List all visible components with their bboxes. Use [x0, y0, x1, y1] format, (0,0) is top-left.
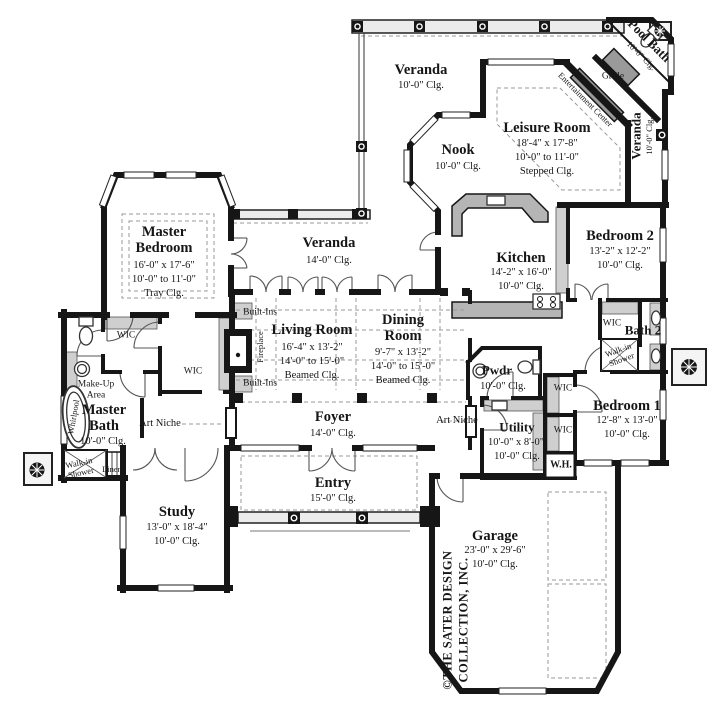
label-pwdr: Pwdr — [482, 364, 512, 379]
label-veranda-mid-clg: 14'-0" Clg. — [306, 255, 352, 267]
entertainment-center-unit — [570, 49, 639, 122]
label-utility: Utility — [499, 421, 534, 436]
label-makeup-area: Make-Up Area — [68, 379, 124, 400]
label-linen: Linen — [102, 465, 122, 475]
label-veranda-mid: Veranda — [303, 235, 356, 251]
label-bedroom2-dims: 13'-2" x 12'-2" — [589, 246, 650, 258]
label-pwdr-clg: 10'-0" Clg. — [480, 381, 526, 393]
label-bedroom1: Bedroom 1 — [593, 398, 661, 414]
label-leisure-range: 10'-0" to 11'-0" — [515, 152, 579, 164]
label-garage-clg: 10'-0" Clg. — [472, 559, 518, 571]
floor-plan: Master Bedroom 16'-0" x 17'-6" 10'-0" to… — [0, 0, 725, 724]
label-living-clg: Beamed Clg. — [285, 370, 340, 382]
label-master-bedroom-clg: Tray Clg. — [144, 288, 184, 300]
label-entry: Entry — [315, 475, 351, 491]
label-living: Living Room — [272, 322, 353, 338]
windows — [61, 44, 674, 694]
label-wic-bedroom1-a: WIC — [554, 384, 572, 395]
label-dining: Dining Room — [368, 312, 438, 344]
label-nook: Nook — [441, 142, 474, 158]
label-study: Study — [159, 504, 195, 520]
label-grille: Grille — [602, 72, 624, 83]
label-master-bedroom: Master Bedroom — [118, 224, 210, 256]
label-foyer: Foyer — [315, 409, 351, 425]
label-art-niche-right: Art Niche — [436, 415, 478, 427]
label-living-dims: 16'-4" x 13'-2" — [281, 342, 342, 354]
label-bedroom1-clg: 10'-0" Clg. — [604, 429, 650, 441]
label-bedroom2: Bedroom 2 — [586, 228, 654, 244]
label-master-bath-clg: 10'-0" Clg. — [80, 436, 126, 448]
label-fireplace: Fireplace — [256, 331, 266, 363]
label-master-bath: Master Bath — [75, 402, 133, 434]
copyright-notice: ©THE SATER DESIGN COLLECTION, INC. — [440, 550, 471, 689]
label-wic-hall: WIC — [184, 367, 202, 378]
label-builtins-top: Built-Ins — [243, 308, 277, 319]
label-leisure-dims: 18'-4" x 17'-8" — [516, 138, 577, 150]
label-entry-clg: 15'-0" Clg. — [310, 493, 356, 505]
label-foyer-clg: 14'-0" Clg. — [310, 428, 356, 440]
label-dining-dims: 9'-7" x 13'-2" — [375, 347, 431, 359]
label-garage-dims: 23'-0" x 29'-6" — [464, 545, 525, 557]
copyright-line1: ©THE SATER DESIGN — [440, 550, 456, 689]
label-study-dims: 13'-0" x 18'-4" — [146, 522, 207, 534]
label-kitchen-clg: 10'-0" Clg. — [498, 281, 544, 293]
label-nook-clg: 10'-0" Clg. — [435, 161, 481, 173]
label-veranda-top-clg: 10'-0" Clg. — [398, 80, 444, 92]
label-utility-dims: 10'-0" x 8'-0" — [488, 437, 544, 449]
label-garage: Garage — [472, 528, 518, 544]
label-utility-clg: 10'-0" Clg. — [494, 451, 540, 463]
veranda-edge — [359, 33, 364, 208]
label-art-niche-left: Art Niche — [139, 418, 181, 430]
label-dining-clg: Beamed Clg. — [376, 375, 431, 387]
label-dining-range: 14'-0" to 15'-0" — [371, 361, 435, 373]
label-kitchen-dims: 14'-2" x 16'-0" — [490, 267, 551, 279]
label-wic-master: WIC — [117, 331, 135, 342]
label-wic-bedroom2: WIC — [603, 319, 621, 330]
label-living-range: 14'-0" to 15'-0" — [280, 356, 344, 368]
label-master-bedroom-dims: 16'-0" x 17'-6" — [133, 260, 194, 272]
label-leisure: Leisure Room — [503, 120, 590, 136]
copyright-line2: COLLECTION, INC. — [456, 550, 472, 689]
label-wic-bedroom1-b: WIC — [554, 426, 572, 437]
label-master-bedroom-range: 10'-0" to 11'-0" — [132, 274, 196, 286]
label-veranda-right-clg: 10'-0" Clg. — [645, 117, 655, 154]
label-builtins-bottom: Built-Ins — [243, 379, 277, 390]
label-veranda-right: Veranda — [630, 112, 645, 159]
label-bedroom2-clg: 10'-0" Clg. — [597, 260, 643, 272]
label-water-heater: W.H. — [550, 459, 572, 470]
label-leisure-clg: Stepped Clg. — [520, 166, 574, 178]
label-bedroom1-dims: 12'-8" x 13'-0" — [596, 415, 657, 427]
label-veranda-top: Veranda — [395, 62, 448, 78]
label-bath2: Bath 2 — [625, 324, 661, 339]
label-study-clg: 10'-0" Clg. — [154, 536, 200, 548]
fireplace — [224, 329, 252, 373]
label-kitchen: Kitchen — [496, 250, 545, 266]
